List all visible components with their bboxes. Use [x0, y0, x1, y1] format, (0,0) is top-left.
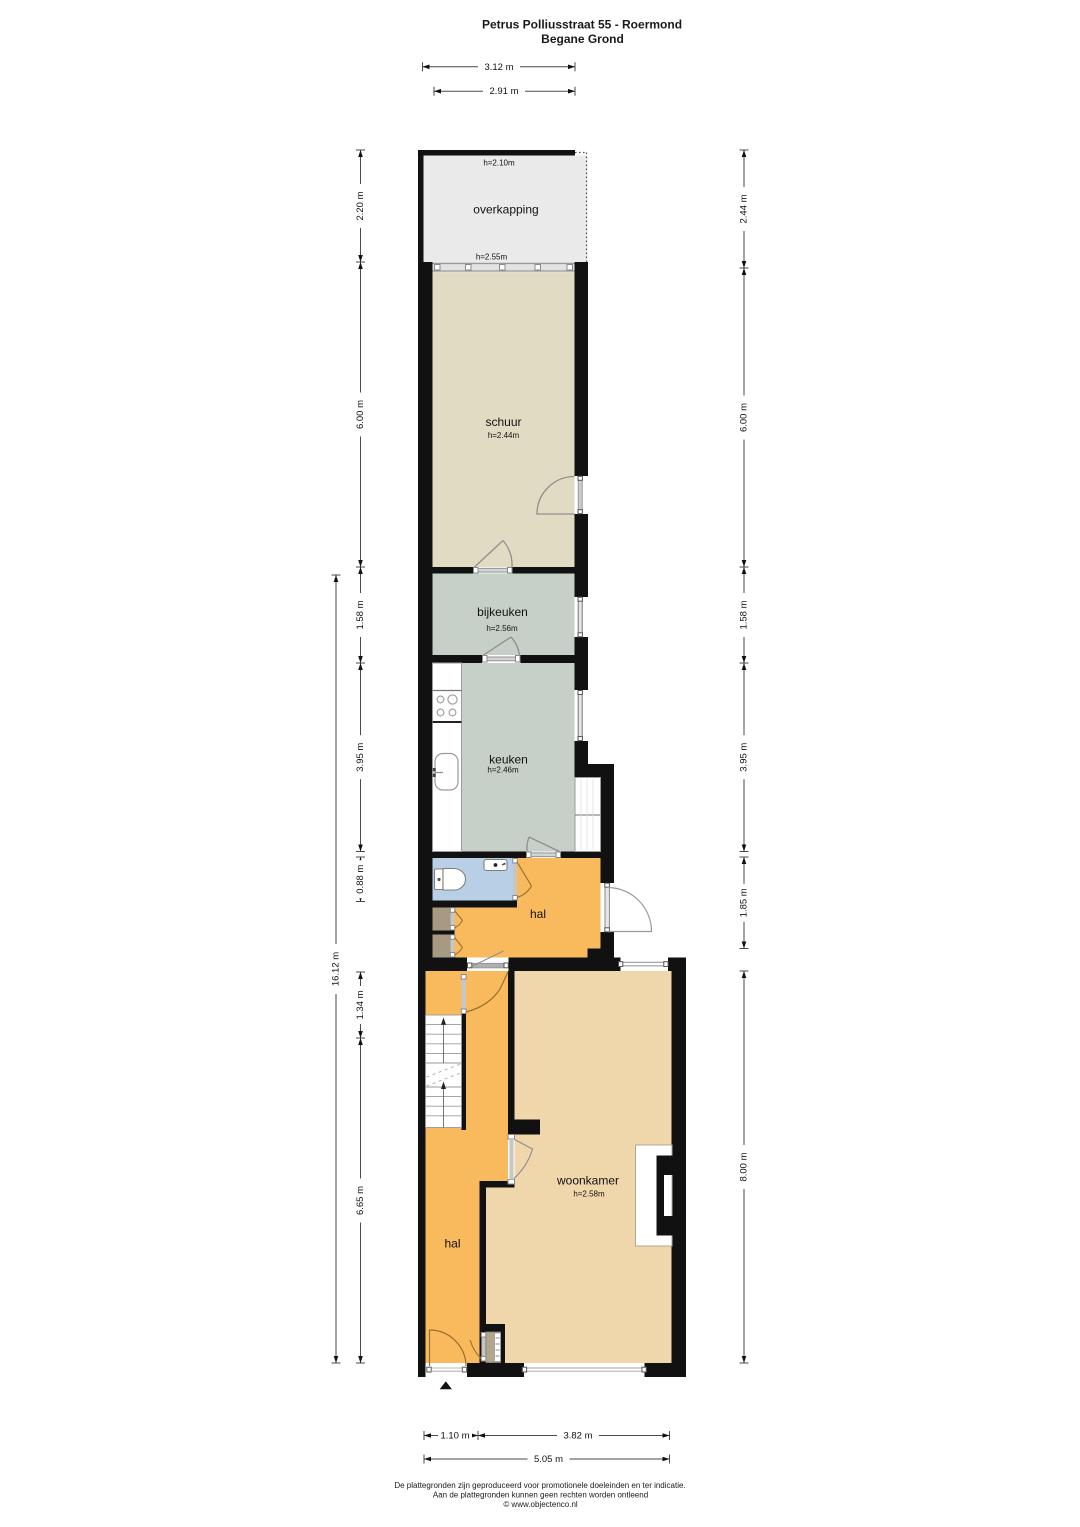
svg-text:Petrus Polliusstraat 55 - Roer: Petrus Polliusstraat 55 - Roermond	[482, 18, 682, 32]
svg-text:16.12 m: 16.12 m	[331, 952, 342, 986]
svg-text:keuken: keuken	[489, 753, 528, 767]
svg-text:Begane Grond: Begane Grond	[541, 32, 624, 46]
svg-text:5.05 m: 5.05 m	[534, 1454, 563, 1465]
svg-text:De plattegronden zijn geproduc: De plattegronden zijn geproduceerd voor …	[394, 1481, 685, 1490]
svg-text:3.82 m: 3.82 m	[563, 1431, 592, 1442]
svg-text:© www.objectenco.nl: © www.objectenco.nl	[503, 1500, 578, 1509]
svg-text:bijkeuken: bijkeuken	[477, 605, 528, 619]
svg-text:2.44 m: 2.44 m	[739, 194, 750, 223]
svg-text:3.95 m: 3.95 m	[739, 743, 750, 772]
svg-text:overkapping: overkapping	[473, 203, 538, 217]
svg-text:6.00 m: 6.00 m	[739, 403, 750, 432]
svg-text:h=2.55m: h=2.55m	[476, 253, 508, 262]
svg-text:hal: hal	[530, 907, 546, 921]
svg-text:h=2.10m: h=2.10m	[483, 159, 515, 168]
svg-text:1.58 m: 1.58 m	[739, 600, 750, 629]
svg-text:6.65 m: 6.65 m	[355, 1186, 366, 1215]
svg-text:6.00 m: 6.00 m	[355, 400, 366, 429]
svg-text:schuur: schuur	[485, 415, 521, 429]
svg-text:3.95 m: 3.95 m	[355, 743, 366, 772]
svg-text:8.00 m: 8.00 m	[739, 1152, 750, 1181]
svg-text:1.34 m: 1.34 m	[355, 990, 366, 1019]
svg-text:0.88 m: 0.88 m	[355, 865, 366, 894]
svg-text:2.20 m: 2.20 m	[355, 191, 366, 220]
svg-text:1.85 m: 1.85 m	[739, 888, 750, 917]
svg-text:1.58 m: 1.58 m	[355, 600, 366, 629]
svg-text:hal: hal	[444, 1237, 460, 1251]
svg-text:woonkamer: woonkamer	[556, 1173, 619, 1187]
svg-text:h=2.56m: h=2.56m	[486, 624, 518, 633]
svg-text:h=2.44m: h=2.44m	[488, 431, 520, 440]
svg-text:Aan de plattegronden kunnen ge: Aan de plattegronden kunnen geen rechten…	[433, 1491, 648, 1500]
svg-text:3.12 m: 3.12 m	[484, 62, 513, 73]
svg-text:2.91 m: 2.91 m	[489, 86, 518, 97]
svg-text:h=2.46m: h=2.46m	[487, 766, 519, 775]
svg-text:1.10 m: 1.10 m	[440, 1431, 469, 1442]
svg-text:h=2.58m: h=2.58m	[573, 1190, 605, 1199]
